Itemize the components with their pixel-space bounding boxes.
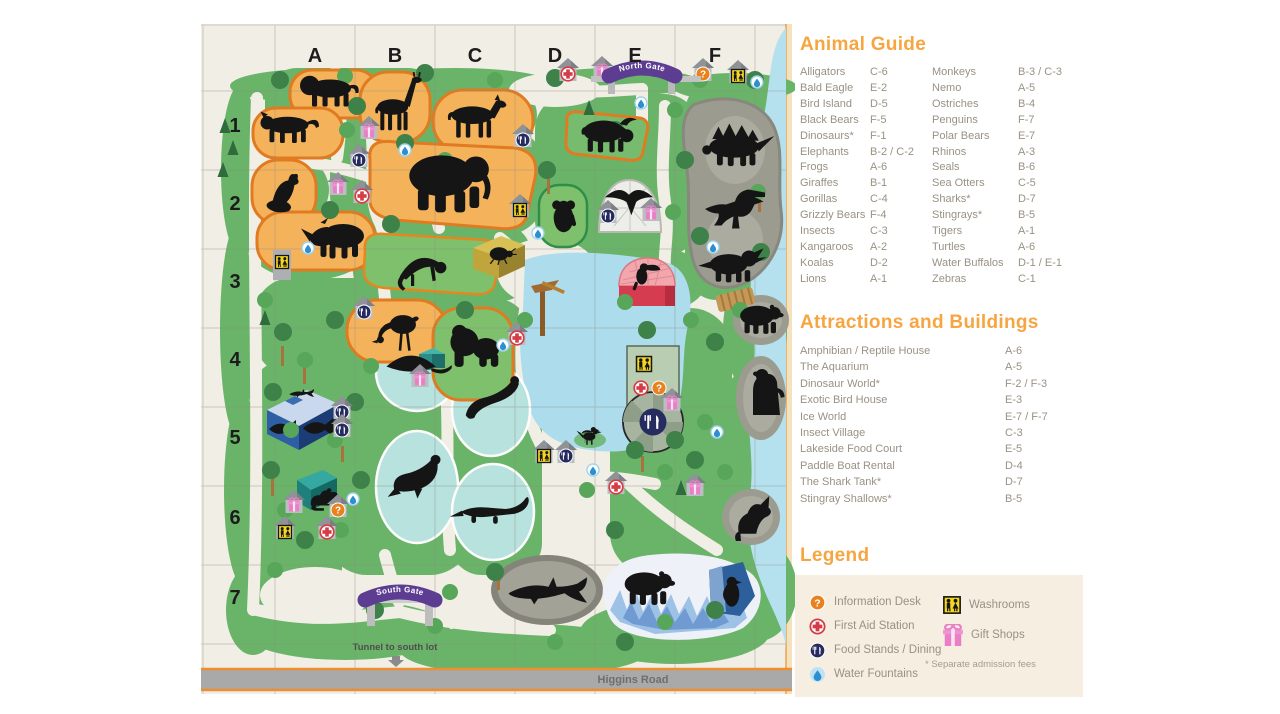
animal-name: Giraffes bbox=[800, 176, 870, 192]
animal-name: Sharks* bbox=[932, 192, 1018, 208]
food-court-dining-icon bbox=[640, 409, 667, 436]
attraction-loc: A-6 bbox=[1005, 343, 1085, 359]
washrooms-marker bbox=[273, 250, 291, 280]
animal-name: Dinosaurs* bbox=[800, 129, 870, 145]
road-label: Higgins Road bbox=[598, 674, 669, 686]
attraction-name: The Aquarium bbox=[800, 359, 1005, 375]
legend-item-washrooms: Washrooms bbox=[943, 590, 1030, 620]
attractions-list: Amphibian / Reptile HouseA-6 The Aquariu… bbox=[800, 343, 1085, 507]
animal-loc: C-5 bbox=[1018, 176, 1085, 192]
attraction-loc: D-4 bbox=[1005, 458, 1085, 474]
legend-item-information-desk: Information Desk bbox=[809, 590, 941, 614]
animal-loc: B-3 / C-3 bbox=[1018, 65, 1085, 81]
attraction-loc: F-2 / F-3 bbox=[1005, 376, 1085, 392]
animal-name: Elephants bbox=[800, 145, 870, 161]
animal-loc: A-3 bbox=[1018, 145, 1085, 161]
legend-box: Information Desk First Aid Station Food … bbox=[795, 575, 1083, 697]
attraction-loc: A-5 bbox=[1005, 359, 1085, 375]
animal-name: Seals bbox=[932, 160, 1018, 176]
legend-section: Legend bbox=[800, 545, 1085, 567]
animal-name: Alligators bbox=[800, 65, 870, 81]
washrooms-icon bbox=[943, 596, 961, 614]
attraction-loc: E-5 bbox=[1005, 441, 1085, 457]
water-fountain-icon bbox=[809, 666, 826, 683]
animal-name: Bald Eagle bbox=[800, 81, 870, 97]
animal-guide-title: Animal Guide bbox=[800, 34, 1085, 56]
information-desk-icon bbox=[809, 594, 826, 611]
attraction-name: The Shark Tank* bbox=[800, 474, 1005, 490]
first-aid-icon bbox=[809, 618, 826, 635]
attraction-loc: C-3 bbox=[1005, 425, 1085, 441]
animal-name: Polar Bears bbox=[932, 129, 1018, 145]
animal-loc: F-5 bbox=[870, 113, 932, 129]
legend-footnote: * Separate admission fees bbox=[925, 659, 1036, 670]
animal-name: Stingrays* bbox=[932, 208, 1018, 224]
col-label-b: B bbox=[388, 45, 402, 67]
animal-name: Turtles bbox=[932, 240, 1018, 256]
gift-shops-icon bbox=[943, 624, 963, 646]
attractions-section: Attractions and Buildings Amphibian / Re… bbox=[800, 312, 1085, 507]
animal-loc: C-6 bbox=[870, 65, 932, 81]
animal-loc: C-4 bbox=[870, 192, 932, 208]
legend-label: First Aid Station bbox=[834, 620, 915, 632]
attraction-loc: E-7 / F-7 bbox=[1005, 409, 1085, 425]
animal-guide-list: AlligatorsC-6MonkeysB-3 / C-3 Bald Eagle… bbox=[800, 65, 1085, 288]
animal-loc: A-1 bbox=[870, 272, 932, 288]
animal-name: Nemo bbox=[932, 81, 1018, 97]
animal-name: Kangaroos bbox=[800, 240, 870, 256]
animal-name: Tigers bbox=[932, 224, 1018, 240]
animal-name: Grizzly Bears bbox=[800, 208, 870, 224]
zoo-map: ? bbox=[195, 10, 795, 700]
animal-loc: D-5 bbox=[870, 97, 932, 113]
animal-loc: C-3 bbox=[870, 224, 932, 240]
animal-guide-section: Animal Guide AlligatorsC-6MonkeysB-3 / C… bbox=[800, 34, 1085, 288]
attraction-loc: D-7 bbox=[1005, 474, 1085, 490]
animal-loc: F-7 bbox=[1018, 113, 1085, 129]
legend-label: Food Stands / Dining bbox=[834, 644, 941, 656]
animal-name: Sea Otters bbox=[932, 176, 1018, 192]
legend-label: Information Desk bbox=[834, 596, 921, 608]
animal-name: Lions bbox=[800, 272, 870, 288]
animal-loc: A-1 bbox=[1018, 224, 1085, 240]
animal-name: Monkeys bbox=[932, 65, 1018, 81]
animal-name: Koalas bbox=[800, 256, 870, 272]
attraction-name: Paddle Boat Rental bbox=[800, 458, 1005, 474]
animal-loc: D-1 / E-1 bbox=[1018, 256, 1085, 272]
legend-item-water-fountains: Water Fountains bbox=[809, 662, 941, 686]
animal-loc: F-1 bbox=[870, 129, 932, 145]
animal-name: Penguins bbox=[932, 113, 1018, 129]
information-desk-icon bbox=[652, 381, 666, 395]
animal-name: Gorillas bbox=[800, 192, 870, 208]
legend-label: Gift Shops bbox=[971, 629, 1025, 641]
zoo-map-page: ? bbox=[0, 0, 1280, 714]
attractions-title: Attractions and Buildings bbox=[800, 312, 1085, 334]
legend-label: Washrooms bbox=[969, 599, 1030, 611]
animal-loc: A-5 bbox=[1018, 81, 1085, 97]
animal-loc: B-5 bbox=[1018, 208, 1085, 224]
row-label-2: 2 bbox=[229, 193, 240, 215]
attraction-name: Dinosaur World* bbox=[800, 376, 1005, 392]
attraction-loc: B-5 bbox=[1005, 491, 1085, 507]
legend-item-gift-shops: Gift Shops bbox=[943, 620, 1030, 650]
animal-loc: E-7 bbox=[1018, 129, 1085, 145]
col-label-d: D bbox=[548, 45, 562, 67]
animal-name: Black Bears bbox=[800, 113, 870, 129]
food-stands-icon bbox=[809, 642, 826, 659]
animal-loc: A-6 bbox=[1018, 240, 1085, 256]
animal-loc: C-1 bbox=[1018, 272, 1085, 288]
attraction-name: Lakeside Food Court bbox=[800, 441, 1005, 457]
animal-loc: D-7 bbox=[1018, 192, 1085, 208]
attraction-loc: E-3 bbox=[1005, 392, 1085, 408]
animal-loc: A-6 bbox=[870, 160, 932, 176]
animal-loc: D-2 bbox=[870, 256, 932, 272]
animal-name: Insects bbox=[800, 224, 870, 240]
animal-loc: A-2 bbox=[870, 240, 932, 256]
row-label-4: 4 bbox=[229, 349, 241, 371]
legend-item-first-aid: First Aid Station bbox=[809, 614, 941, 638]
col-label-a: A bbox=[308, 45, 322, 67]
animal-name: Water Buffalos bbox=[932, 256, 1018, 272]
animal-loc: B-6 bbox=[1018, 160, 1085, 176]
row-label-5: 5 bbox=[229, 427, 240, 449]
animal-name: Ostriches bbox=[932, 97, 1018, 113]
animal-loc: E-2 bbox=[870, 81, 932, 97]
attraction-name: Exotic Bird House bbox=[800, 392, 1005, 408]
animal-name: Rhinos bbox=[932, 145, 1018, 161]
row-label-7: 7 bbox=[229, 587, 240, 609]
animal-loc: B-4 bbox=[1018, 97, 1085, 113]
animal-name: Zebras bbox=[932, 272, 1018, 288]
animal-name: Bird Island bbox=[800, 97, 870, 113]
col-label-e: E bbox=[628, 45, 641, 67]
attraction-name: Ice World bbox=[800, 409, 1005, 425]
attraction-name: Stingray Shallows* bbox=[800, 491, 1005, 507]
row-label-6: 6 bbox=[229, 507, 240, 529]
col-label-c: C bbox=[468, 45, 482, 67]
animal-loc: B-1 bbox=[870, 176, 932, 192]
tunnel-label: Tunnel to south lot bbox=[353, 642, 439, 653]
col-label-f: F bbox=[709, 45, 721, 67]
legend-item-food-stands: Food Stands / Dining bbox=[809, 638, 941, 662]
animal-loc: B-2 / C-2 bbox=[870, 145, 932, 161]
higgins-road: Higgins Road bbox=[201, 668, 792, 691]
animal-name: Frogs bbox=[800, 160, 870, 176]
row-label-1: 1 bbox=[229, 115, 240, 137]
legend-title: Legend bbox=[800, 545, 1085, 567]
attraction-name: Insect Village bbox=[800, 425, 1005, 441]
row-label-3: 3 bbox=[229, 271, 240, 293]
attraction-name: Amphibian / Reptile House bbox=[800, 343, 1005, 359]
animal-loc: F-4 bbox=[870, 208, 932, 224]
zoo-map-svg: ? bbox=[195, 10, 795, 700]
washrooms-icon bbox=[637, 357, 652, 372]
first-aid-icon bbox=[634, 381, 648, 395]
legend-label: Water Fountains bbox=[834, 668, 918, 680]
